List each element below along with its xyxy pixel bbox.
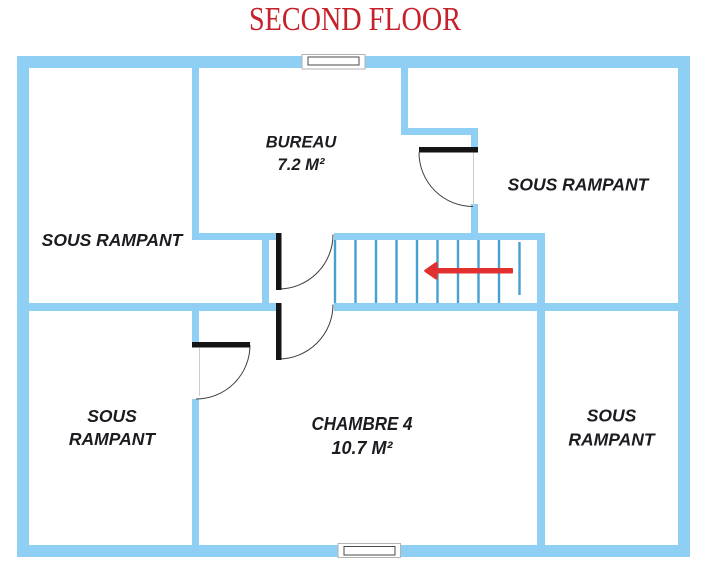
svg-text:RAMPANT: RAMPANT — [568, 430, 656, 450]
svg-text:7.2 M²: 7.2 M² — [278, 156, 326, 174]
svg-text:CHAMBRE 4: CHAMBRE 4 — [312, 414, 413, 434]
svg-text:SOUS: SOUS — [87, 406, 137, 426]
svg-text:SOUS RAMPANT: SOUS RAMPANT — [42, 230, 184, 250]
svg-text:BUREAU: BUREAU — [266, 134, 338, 152]
svg-text:SOUS RAMPANT: SOUS RAMPANT — [508, 175, 650, 195]
svg-text:SOUS: SOUS — [587, 406, 637, 426]
svg-text:RAMPANT: RAMPANT — [69, 429, 157, 449]
svg-text:10.7 M²: 10.7 M² — [332, 438, 394, 458]
svg-text:SECOND FLOOR: SECOND FLOOR — [249, 1, 461, 38]
